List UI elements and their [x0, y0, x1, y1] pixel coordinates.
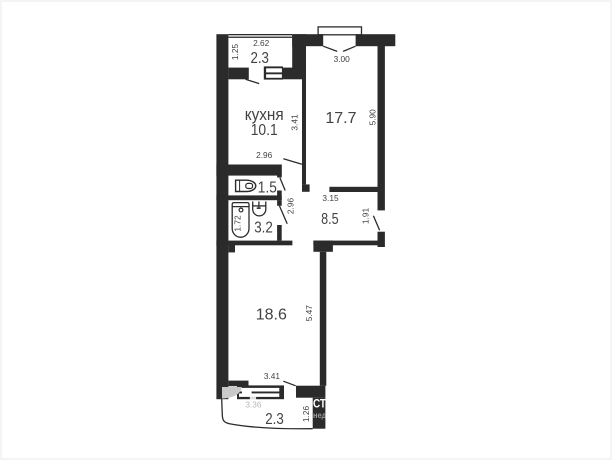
svg-text:2.96: 2.96 — [256, 150, 273, 160]
svg-text:10.1: 10.1 — [251, 122, 278, 139]
svg-text:5.90: 5.90 — [367, 109, 377, 126]
svg-text:1.5: 1.5 — [258, 179, 277, 196]
svg-text:1.26: 1.26 — [301, 406, 311, 423]
svg-text:3.41: 3.41 — [264, 371, 281, 381]
svg-text:2.96: 2.96 — [285, 198, 295, 215]
svg-text:17.7: 17.7 — [325, 110, 356, 127]
svg-text:3.2: 3.2 — [254, 220, 273, 237]
svg-text:нед: нед — [313, 411, 326, 420]
svg-text:1.25: 1.25 — [230, 44, 240, 61]
svg-text:3.00: 3.00 — [334, 54, 351, 64]
svg-text:8.5: 8.5 — [321, 211, 339, 228]
svg-text:3.41: 3.41 — [290, 114, 300, 131]
svg-text:кухня: кухня — [245, 105, 284, 124]
svg-text:2.3: 2.3 — [250, 50, 269, 67]
svg-text:18.6: 18.6 — [256, 307, 287, 324]
svg-text:3.15: 3.15 — [322, 193, 339, 203]
svg-text:1.72: 1.72 — [233, 215, 243, 232]
svg-text:3.36: 3.36 — [245, 399, 262, 409]
svg-text:2.3: 2.3 — [265, 411, 284, 428]
svg-text:2.62: 2.62 — [253, 38, 270, 48]
svg-text:5.47: 5.47 — [304, 305, 314, 322]
svg-text:СТ: СТ — [313, 397, 326, 411]
svg-text:1.91: 1.91 — [360, 208, 370, 225]
